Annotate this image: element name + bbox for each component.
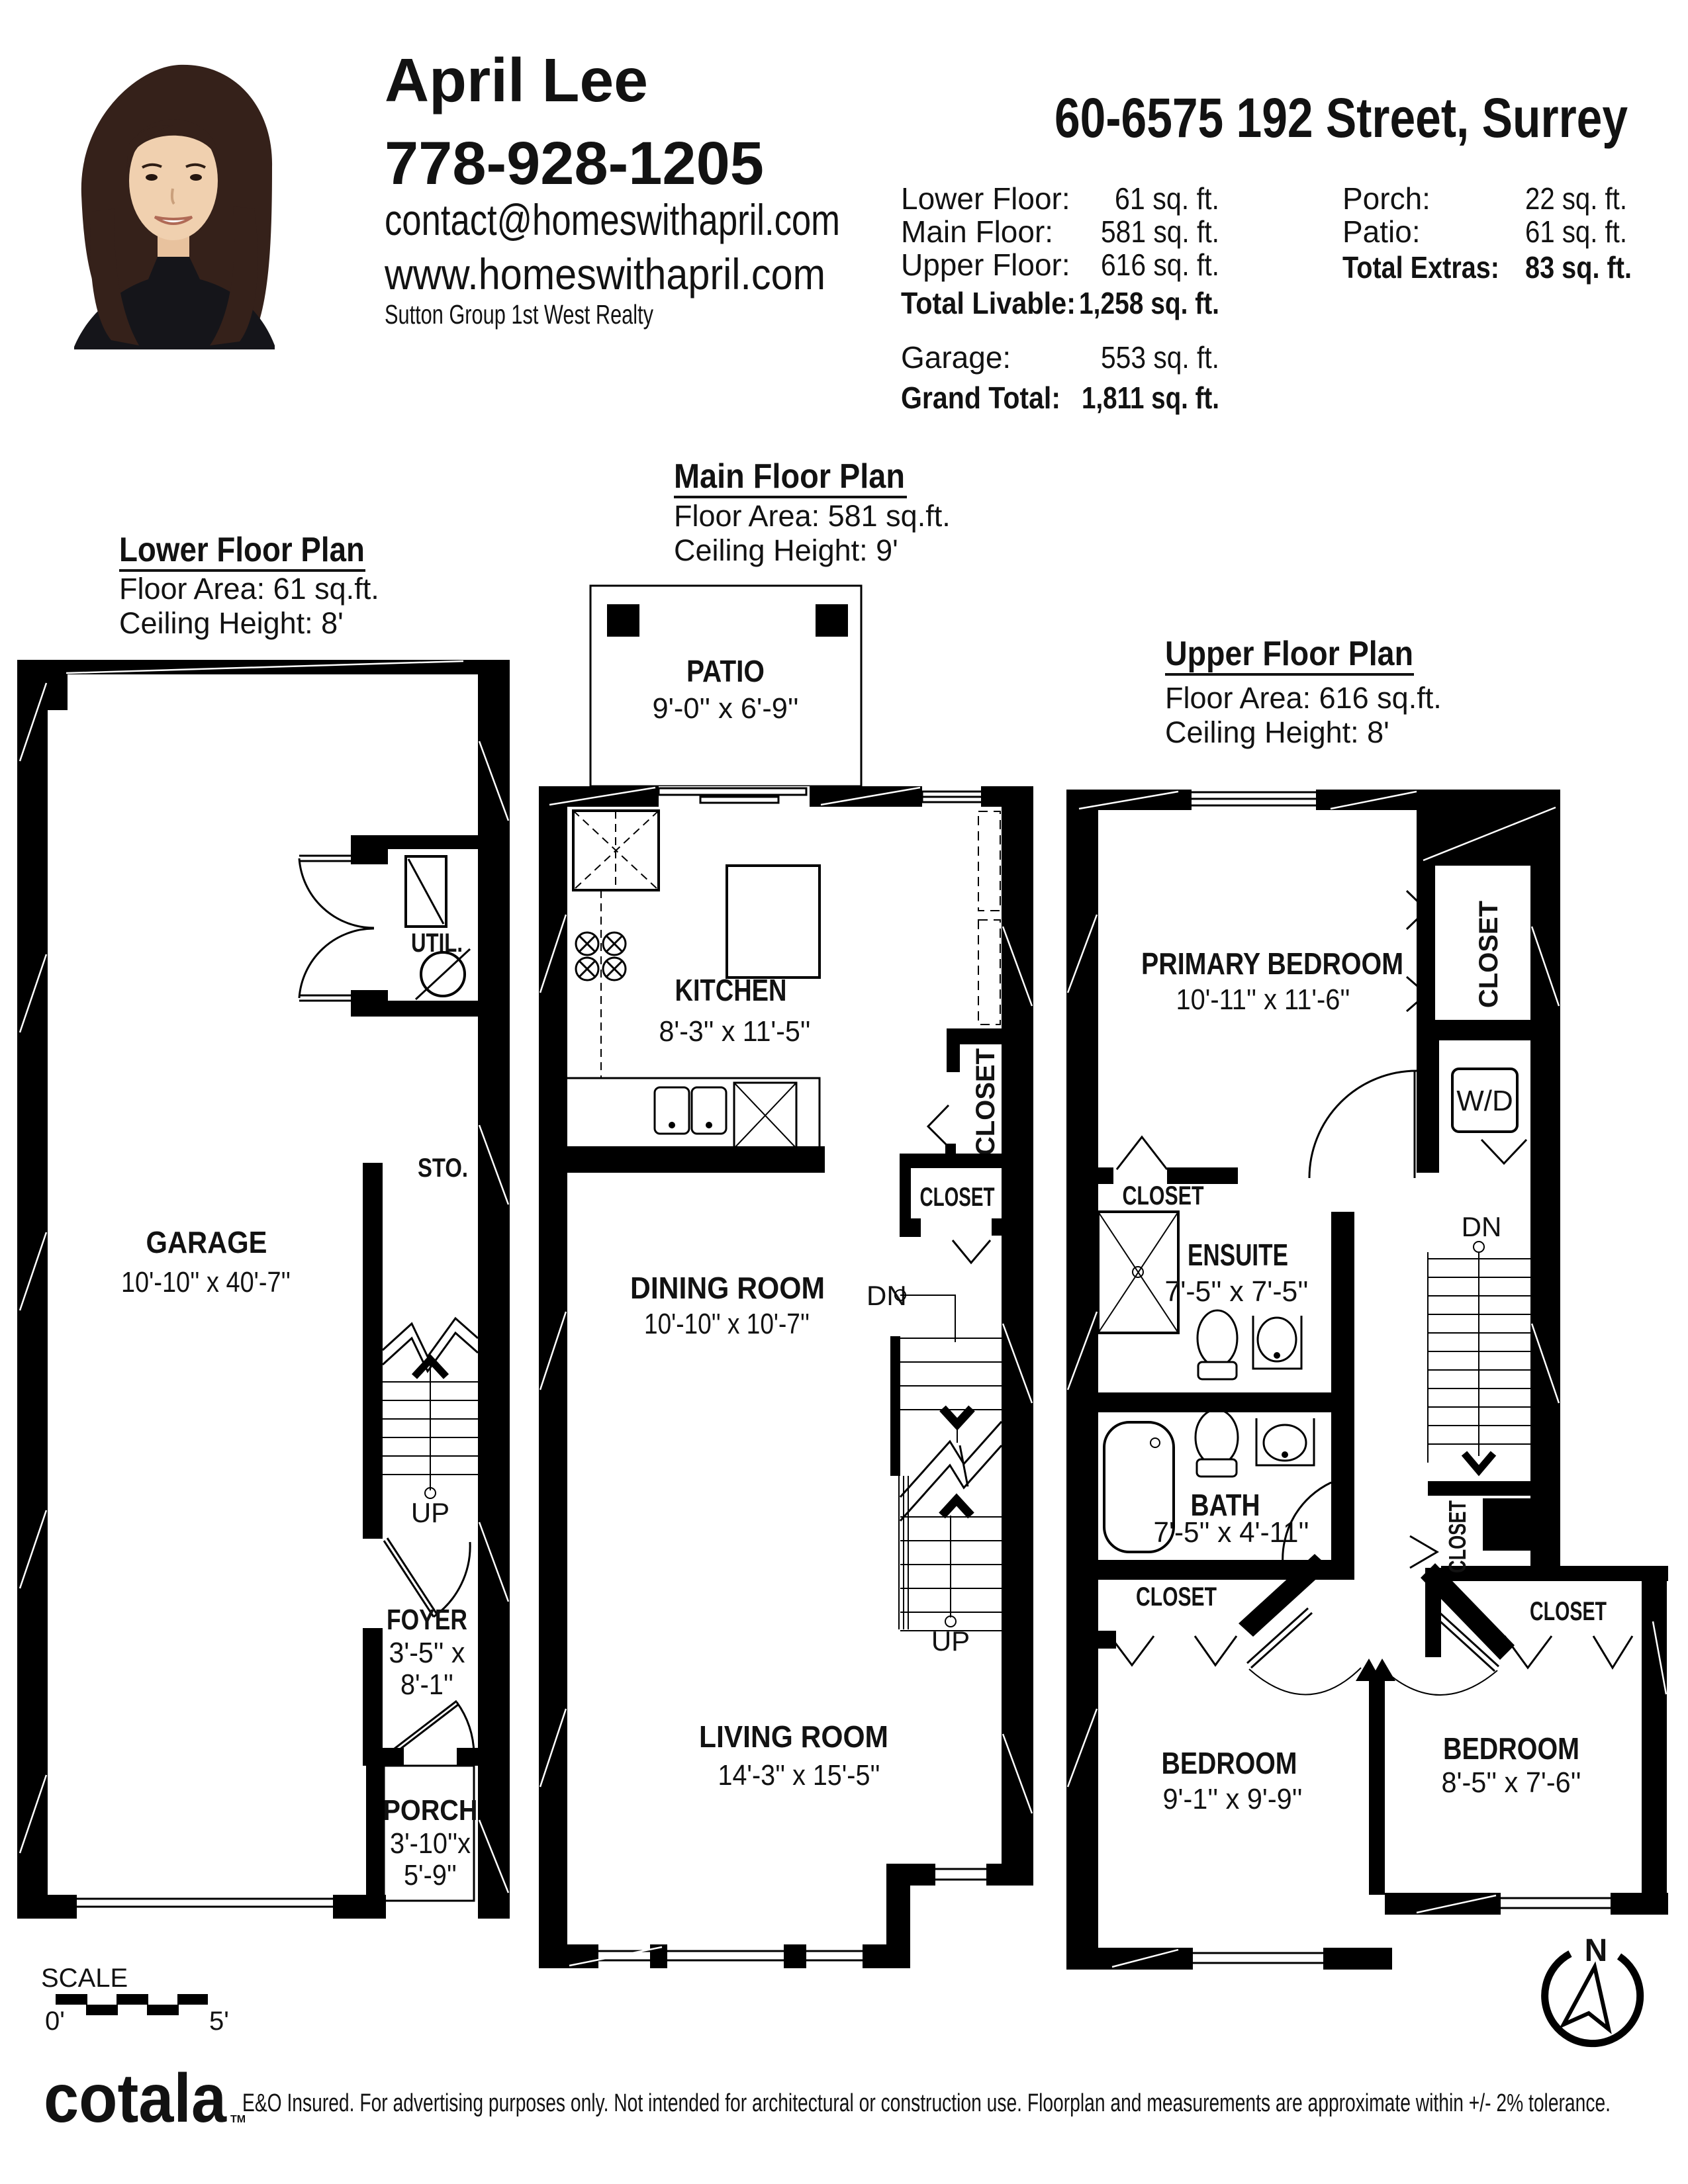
- svg-text:KITCHEN: KITCHEN: [675, 973, 787, 1007]
- svg-text:3'-10''x: 3'-10''x: [390, 1827, 471, 1860]
- svg-text:CLOSET: CLOSET: [1530, 1597, 1607, 1626]
- svg-text:0': 0': [45, 2007, 65, 2036]
- svg-text:14'-3'' x 15'-5'': 14'-3'' x 15'-5'': [718, 1759, 880, 1792]
- svg-text:Main Floor:: Main Floor:: [901, 214, 1053, 249]
- svg-text:8'-1'': 8'-1'': [400, 1668, 453, 1701]
- svg-text:BEDROOM: BEDROOM: [1443, 1731, 1579, 1766]
- svg-text:FOYER: FOYER: [387, 1604, 467, 1636]
- svg-text:10'-10'' x 40'-7'': 10'-10'' x 40'-7'': [121, 1266, 291, 1298]
- svg-text:7'-5'' x 4'-11'': 7'-5'' x 4'-11'': [1154, 1516, 1309, 1549]
- svg-text:BEDROOM: BEDROOM: [1162, 1746, 1297, 1780]
- svg-text:581 sq. ft.: 581 sq. ft.: [1101, 214, 1219, 249]
- svg-text:PRIMARY BEDROOM: PRIMARY BEDROOM: [1141, 946, 1403, 981]
- svg-text:E&O Insured. For advertising p: E&O Insured. For advertising purposes on…: [242, 2089, 1611, 2117]
- svg-text:PORCH: PORCH: [383, 1794, 478, 1827]
- svg-text:616 sq. ft.: 616 sq. ft.: [1101, 248, 1219, 282]
- svg-text:Main Floor Plan: Main Floor Plan: [674, 457, 905, 496]
- svg-text:cotala: cotala: [44, 2060, 227, 2137]
- svg-text:Lower Floor:: Lower Floor:: [901, 181, 1070, 216]
- svg-text:83 sq. ft.: 83 sq. ft.: [1525, 250, 1632, 285]
- svg-text:W/D: W/D: [1456, 1085, 1513, 1117]
- svg-text:Upper Floor Plan: Upper Floor Plan: [1165, 635, 1413, 673]
- svg-text:9'-0'' x 6'-9'': 9'-0'' x 6'-9'': [653, 692, 799, 725]
- svg-text:5'-9'': 5'-9'': [404, 1859, 457, 1891]
- svg-text:UP: UP: [931, 1625, 970, 1657]
- svg-text:CLOSET: CLOSET: [920, 1183, 995, 1212]
- svg-text:STO.: STO.: [418, 1154, 468, 1183]
- svg-text:GARAGE: GARAGE: [146, 1225, 267, 1259]
- svg-text:1,811 sq. ft.: 1,811 sq. ft.: [1082, 381, 1219, 415]
- svg-text:DN: DN: [1462, 1211, 1502, 1242]
- svg-text:Patio:: Patio:: [1342, 214, 1421, 249]
- svg-text:8'-5'' x 7'-6'': 8'-5'' x 7'-6'': [1442, 1766, 1581, 1799]
- svg-text:Lower Floor Plan: Lower Floor Plan: [119, 531, 365, 569]
- svg-text:SCALE: SCALE: [41, 1964, 128, 1993]
- svg-text:Floor Area: 616 sq.ft.: Floor Area: 616 sq.ft.: [1165, 681, 1442, 715]
- svg-text:Ceiling Height: 8': Ceiling Height: 8': [119, 606, 344, 640]
- svg-text:N: N: [1585, 1933, 1608, 1968]
- svg-text:Grand Total:: Grand Total:: [901, 381, 1060, 415]
- svg-text:ENSUITE: ENSUITE: [1188, 1238, 1288, 1272]
- svg-text:778-928-1205: 778-928-1205: [385, 130, 764, 197]
- svg-text:contact@homeswithapril.com: contact@homeswithapril.com: [385, 195, 840, 244]
- svg-text:CLOSET: CLOSET: [971, 1048, 1000, 1156]
- svg-text:5': 5': [209, 2007, 229, 2036]
- svg-text:Upper Floor:: Upper Floor:: [901, 248, 1070, 282]
- svg-text:LIVING ROOM: LIVING ROOM: [699, 1719, 888, 1754]
- svg-text:22 sq. ft.: 22 sq. ft.: [1525, 181, 1627, 216]
- svg-text:9'-1'' x 9'-9'': 9'-1'' x 9'-9'': [1163, 1783, 1303, 1815]
- svg-text:CLOSET: CLOSET: [1123, 1181, 1204, 1210]
- svg-text:CLOSET: CLOSET: [1444, 1500, 1471, 1573]
- svg-text:Ceiling Height: 9': Ceiling Height: 9': [674, 533, 898, 567]
- svg-text:CLOSET: CLOSET: [1136, 1582, 1217, 1612]
- svg-text:10'-10'' x 10'-7'': 10'-10'' x 10'-7'': [644, 1308, 810, 1340]
- svg-text:8'-3'' x 11'-5'': 8'-3'' x 11'-5'': [659, 1015, 811, 1048]
- svg-text:553 sq. ft.: 553 sq. ft.: [1101, 340, 1219, 375]
- svg-text:Floor Area: 581 sq.ft.: Floor Area: 581 sq.ft.: [674, 499, 951, 533]
- svg-text:1,258 sq. ft.: 1,258 sq. ft.: [1079, 286, 1219, 320]
- svg-text:DINING ROOM: DINING ROOM: [630, 1271, 825, 1305]
- svg-text:10'-11'' x 11'-6'': 10'-11'' x 11'-6'': [1176, 983, 1350, 1016]
- svg-text:7'-5'' x 7'-5'': 7'-5'' x 7'-5'': [1165, 1275, 1309, 1308]
- svg-text:UP: UP: [411, 1497, 449, 1528]
- svg-text:60-6575 192 Street, Surrey: 60-6575 192 Street, Surrey: [1055, 87, 1628, 149]
- svg-text:www.homeswithapril.com: www.homeswithapril.com: [384, 250, 825, 298]
- svg-text:Porch:: Porch:: [1342, 181, 1430, 216]
- svg-text:Total Extras:: Total Extras:: [1342, 250, 1499, 285]
- svg-text:CLOSET: CLOSET: [1474, 901, 1503, 1008]
- svg-text:PATIO: PATIO: [686, 654, 765, 688]
- svg-text:Sutton Group 1st West Realty: Sutton Group 1st West Realty: [385, 299, 653, 330]
- svg-text:3'-5'' x: 3'-5'' x: [389, 1637, 465, 1669]
- svg-text:61 sq. ft.: 61 sq. ft.: [1115, 181, 1219, 216]
- svg-text:April Lee: April Lee: [385, 46, 648, 114]
- svg-text:Floor Area: 61 sq.ft.: Floor Area: 61 sq.ft.: [119, 572, 379, 606]
- svg-text:Total Livable:: Total Livable:: [901, 286, 1076, 320]
- svg-text:Ceiling Height: 8': Ceiling Height: 8': [1165, 715, 1389, 749]
- svg-text:61 sq. ft.: 61 sq. ft.: [1525, 214, 1627, 249]
- svg-text:Garage:: Garage:: [901, 340, 1011, 375]
